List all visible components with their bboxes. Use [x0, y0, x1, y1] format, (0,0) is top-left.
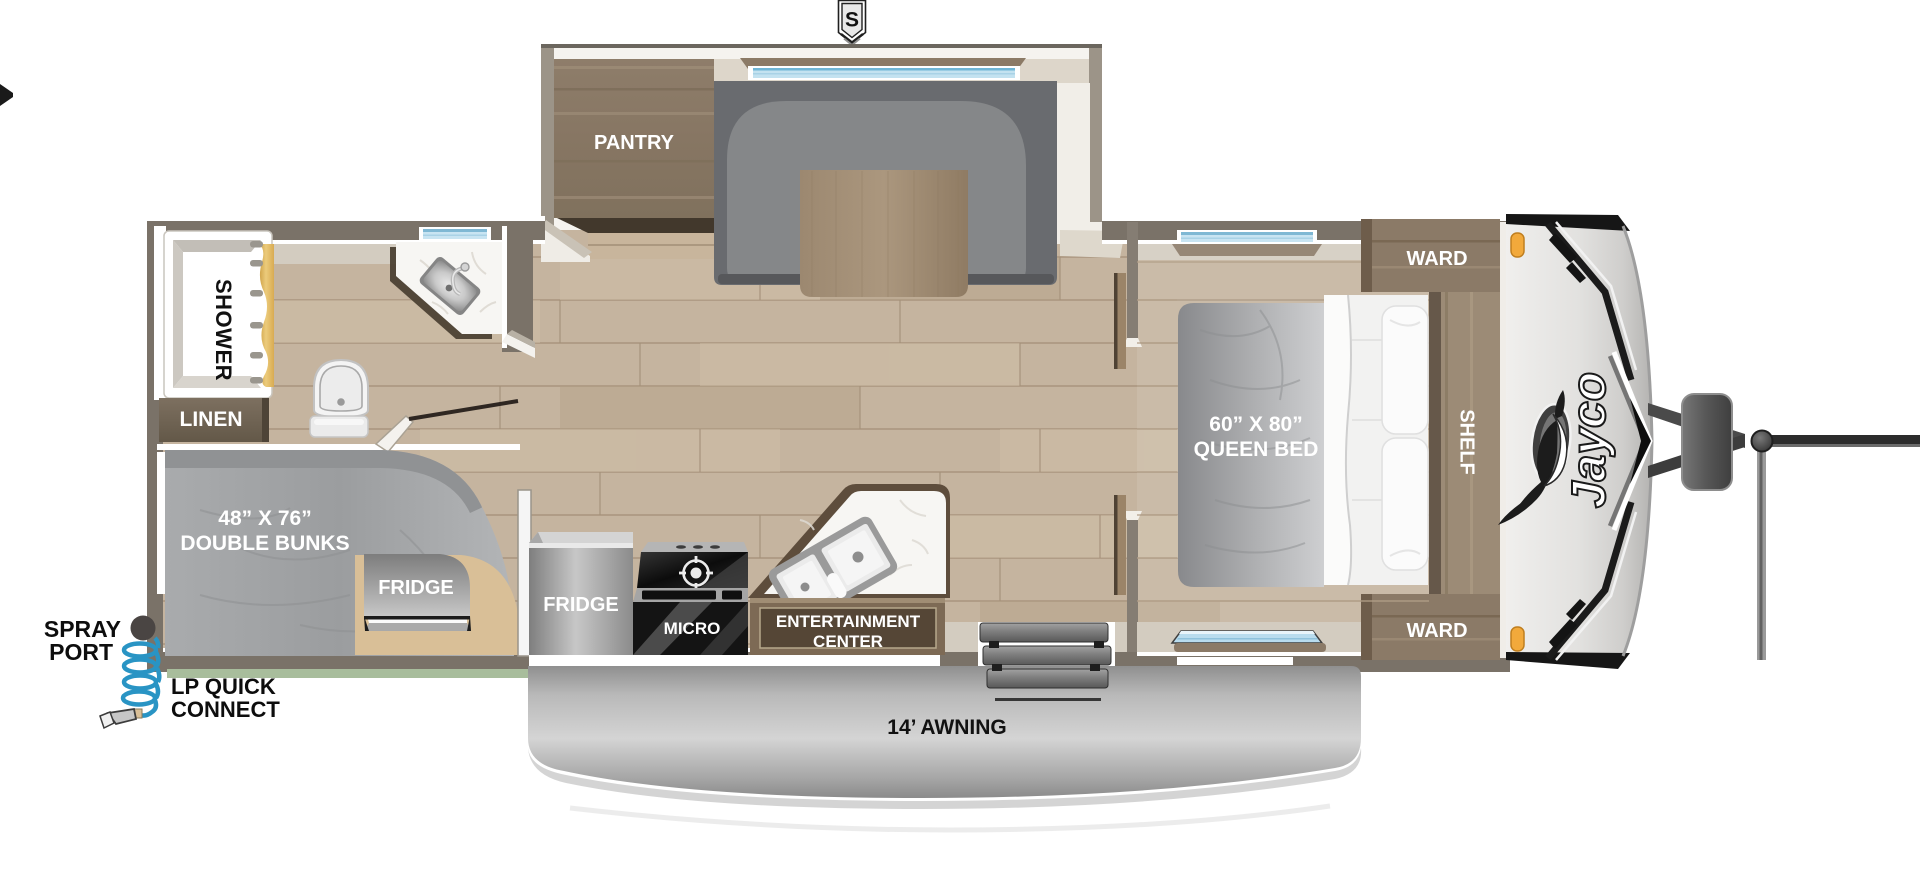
svg-text:QUEEN BED: QUEEN BED: [1194, 438, 1319, 461]
svg-text:FRIDGE: FRIDGE: [378, 577, 454, 599]
svg-text:ENTERTAINMENT: ENTERTAINMENT: [776, 612, 921, 631]
svg-text:DOUBLE BUNKS: DOUBLE BUNKS: [180, 532, 349, 555]
svg-text:PANTRY: PANTRY: [594, 132, 675, 154]
svg-text:Jayco: Jayco: [1563, 372, 1616, 508]
svg-text:CONNECT: CONNECT: [171, 697, 280, 722]
svg-text:SHOWER: SHOWER: [211, 279, 236, 381]
svg-text:PORT: PORT: [49, 639, 113, 665]
svg-text:LP QUICK: LP QUICK: [171, 674, 276, 699]
svg-text:LINEN: LINEN: [180, 408, 243, 431]
svg-text:60” X 80”: 60” X 80”: [1209, 413, 1302, 436]
svg-text:FRIDGE: FRIDGE: [543, 594, 619, 616]
svg-text:WARD: WARD: [1406, 620, 1467, 642]
svg-text:MICRO: MICRO: [664, 619, 721, 638]
svg-text:SHELF: SHELF: [1456, 409, 1478, 475]
svg-text:S: S: [845, 9, 859, 32]
svg-text:14’ AWNING: 14’ AWNING: [887, 716, 1006, 739]
svg-text:48” X 76”: 48” X 76”: [218, 507, 311, 530]
svg-text:WARD: WARD: [1406, 248, 1467, 270]
svg-text:CENTER: CENTER: [813, 632, 883, 651]
